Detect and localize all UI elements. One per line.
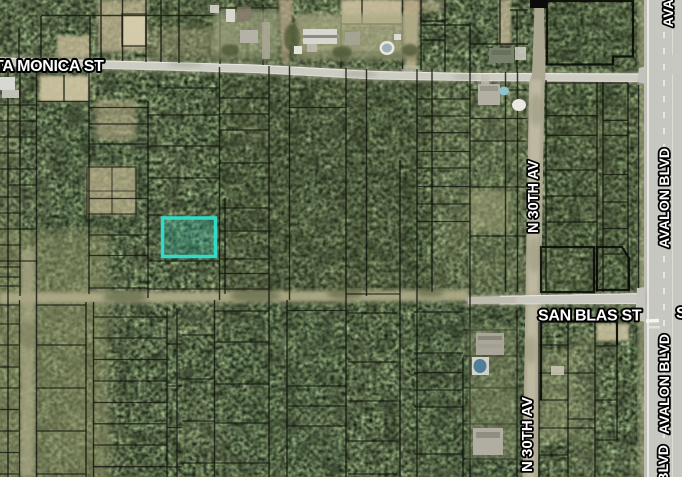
svg-text:AVALON BLVD: AVALON BLVD bbox=[656, 148, 672, 248]
svg-text:TA MONICA ST: TA MONICA ST bbox=[0, 58, 104, 75]
svg-text:N 30TH AV: N 30TH AV bbox=[526, 160, 542, 233]
svg-text:AVALON BLVD: AVALON BLVD bbox=[655, 445, 671, 477]
svg-text:AVALON BLVD: AVALON BLVD bbox=[660, 0, 676, 27]
svg-text:SAN BLAS ST: SAN BLAS ST bbox=[538, 308, 642, 325]
svg-text:N 30TH AV: N 30TH AV bbox=[519, 397, 536, 472]
svg-text:SA: SA bbox=[676, 305, 682, 322]
svg-text:AVALON BLVD: AVALON BLVD bbox=[656, 334, 672, 434]
